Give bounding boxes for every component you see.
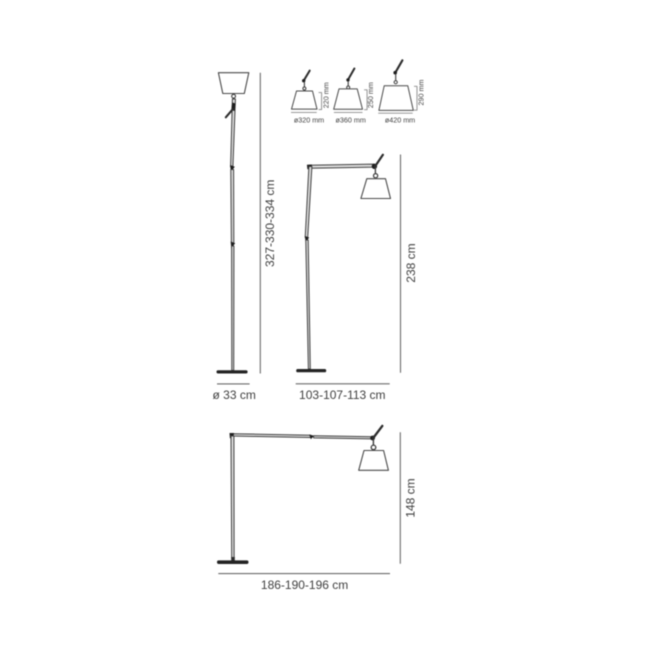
svg-text:290 mm: 290 mm (416, 80, 425, 106)
svg-text:ø320 mm: ø320 mm (294, 115, 324, 124)
svg-text:238 cm: 238 cm (404, 243, 418, 282)
svg-text:186-190-196 cm: 186-190-196 cm (261, 578, 348, 592)
svg-text:250 mm: 250 mm (366, 82, 375, 108)
svg-text:148 cm: 148 cm (404, 478, 418, 517)
svg-text:ø420 mm: ø420 mm (385, 115, 415, 124)
svg-text:220 mm: 220 mm (322, 82, 331, 108)
svg-text:327-330-334 cm: 327-330-334 cm (263, 180, 277, 267)
svg-text:ø 33 cm: ø 33 cm (213, 388, 256, 402)
svg-text:103-107-113 cm: 103-107-113 cm (299, 388, 386, 402)
svg-text:ø360 mm: ø360 mm (336, 115, 366, 124)
